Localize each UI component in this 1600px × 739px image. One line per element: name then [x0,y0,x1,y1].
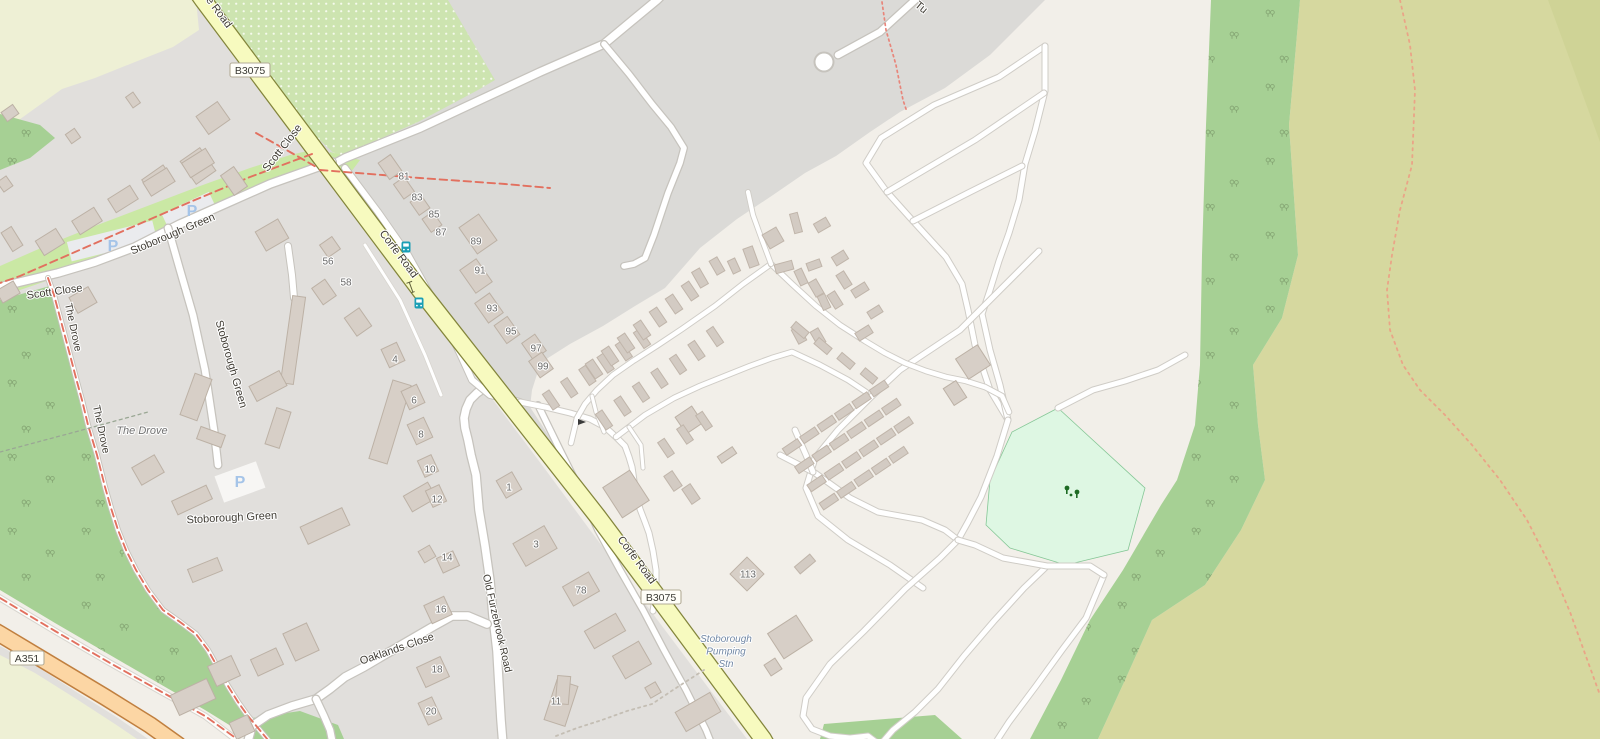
svg-text:95: 95 [505,327,517,338]
svg-text:81: 81 [398,172,410,183]
svg-text:1: 1 [506,483,512,494]
svg-text:78: 78 [575,586,587,597]
svg-text:18: 18 [431,665,443,676]
svg-text:10: 10 [424,465,436,476]
svg-text:The Drove: The Drove [116,425,167,437]
svg-text:6: 6 [411,396,417,407]
svg-text:85: 85 [428,210,440,221]
svg-text:P: P [108,238,119,255]
svg-text:B3075: B3075 [646,592,677,604]
svg-text:89: 89 [470,237,482,248]
svg-text:87: 87 [435,228,447,239]
svg-text:97: 97 [530,344,542,355]
svg-text:11: 11 [551,697,562,708]
svg-text:12: 12 [431,495,443,506]
svg-text:8: 8 [418,430,424,441]
svg-text:4: 4 [392,355,398,366]
svg-text:3: 3 [533,540,539,551]
svg-text:16: 16 [435,605,447,616]
svg-text:14: 14 [441,553,453,564]
svg-text:113: 113 [740,570,756,581]
svg-text:20: 20 [425,707,437,718]
svg-text:A351: A351 [15,653,40,665]
svg-text:B3075: B3075 [235,65,266,77]
svg-text:99: 99 [537,362,549,373]
svg-text:91: 91 [474,266,486,277]
svg-text:58: 58 [340,278,352,289]
svg-text:56: 56 [322,257,334,268]
svg-text:P: P [235,474,246,491]
svg-text:83: 83 [411,193,423,204]
svg-text:93: 93 [486,304,498,315]
